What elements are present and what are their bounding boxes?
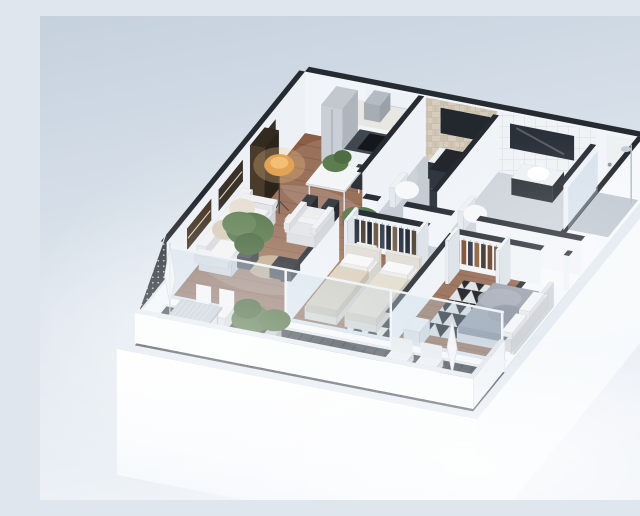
floor-plan-canvas: [40, 16, 640, 500]
toilet-1-tank-front: [390, 187, 396, 208]
lamp-shade-highlight: [270, 157, 288, 169]
range-hood-front: [364, 103, 380, 123]
toilet-1-bowl: [395, 181, 419, 199]
table-plant-foliage: [334, 150, 352, 164]
floor-plan-render: 3D isometric floor plan render of a furn…: [40, 16, 640, 500]
